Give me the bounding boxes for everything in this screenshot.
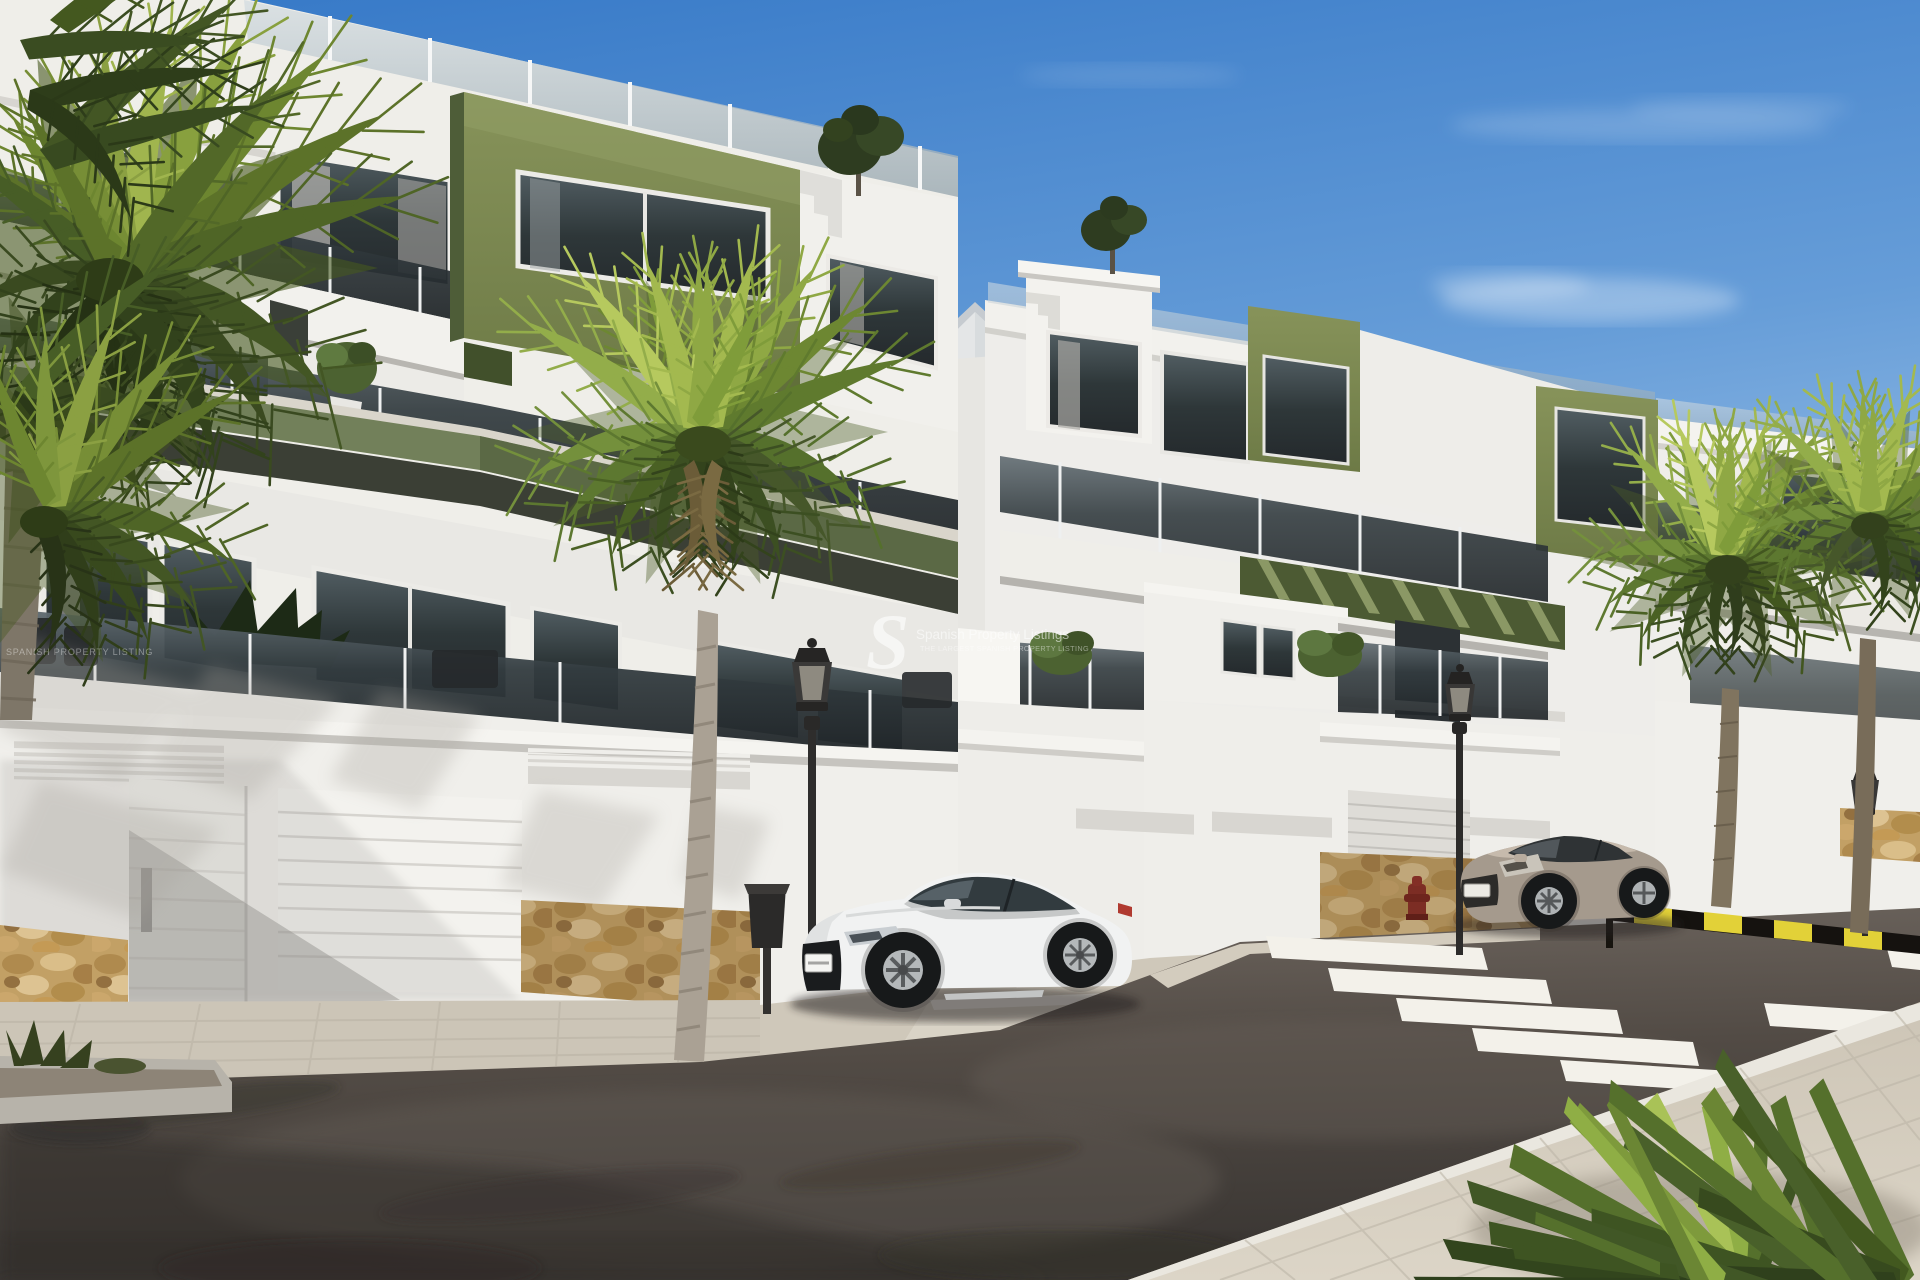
svg-text:SPANISH PROPERTY LISTING: SPANISH PROPERTY LISTING	[6, 647, 153, 657]
svg-text:S: S	[866, 598, 909, 685]
svg-text:Spanish Property Listings: Spanish Property Listings	[916, 627, 1069, 642]
svg-text:THE LARGEST SPANISH PROPERTY L: THE LARGEST SPANISH PROPERTY LISTING	[920, 644, 1089, 653]
